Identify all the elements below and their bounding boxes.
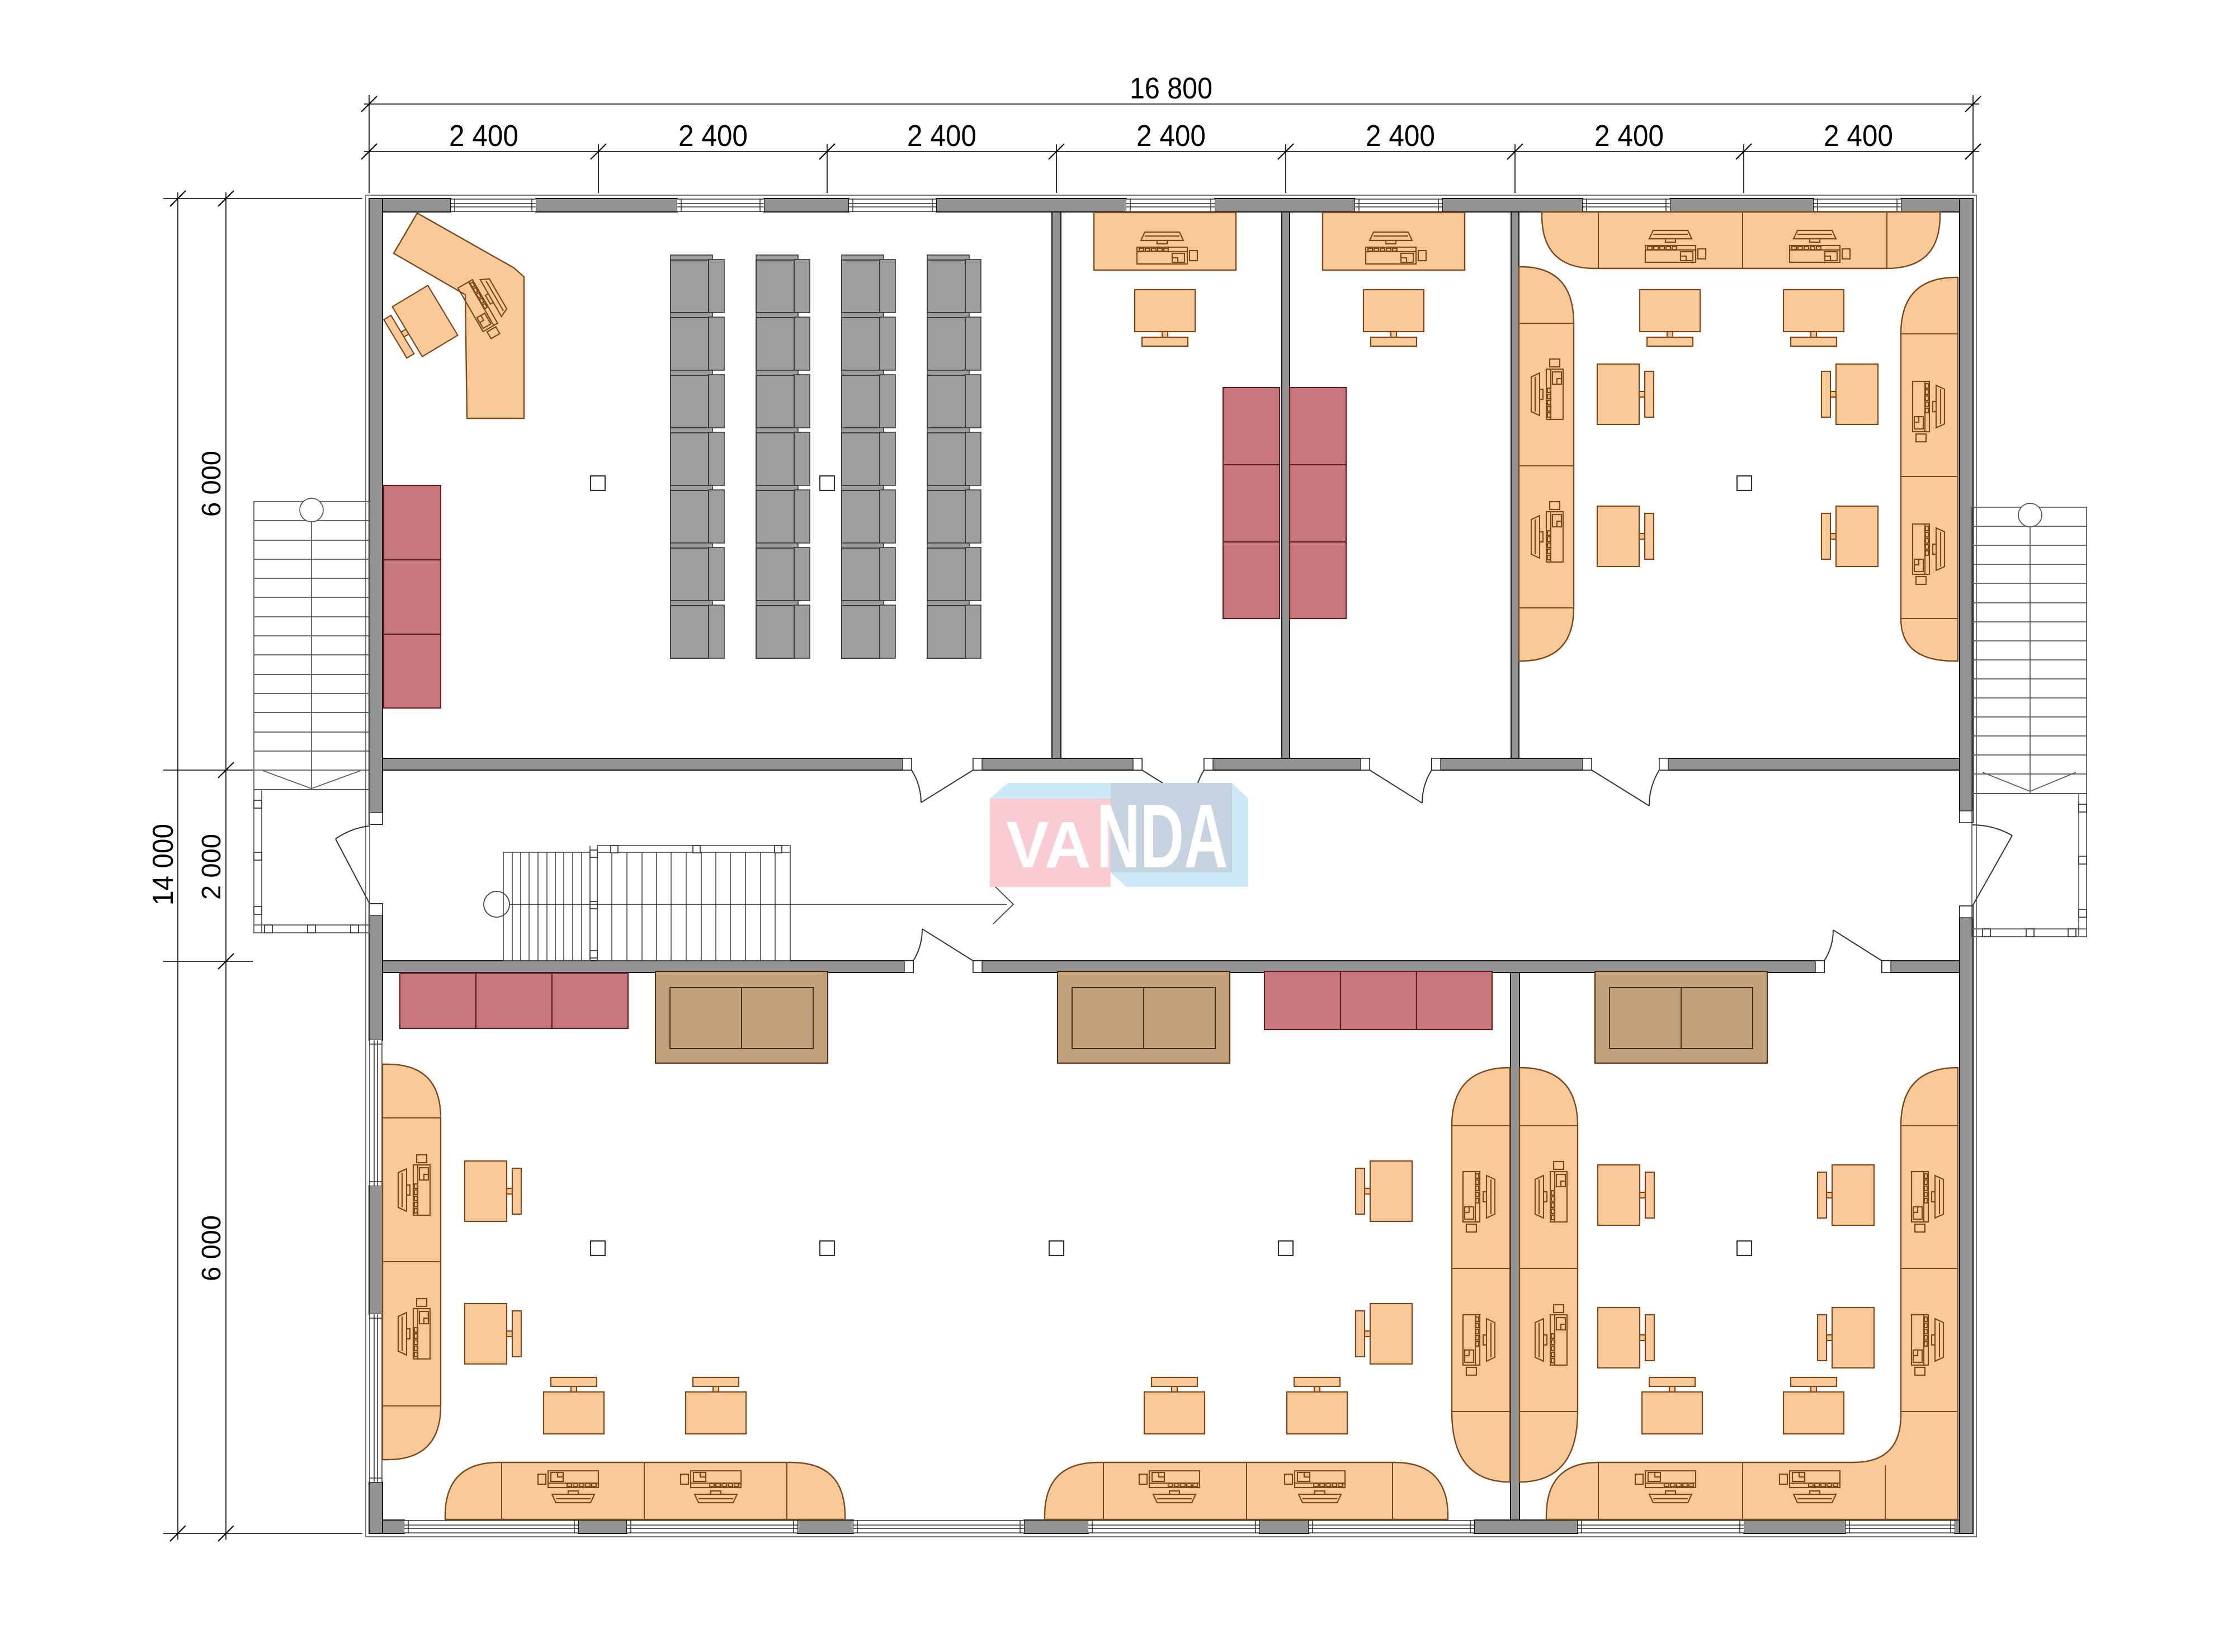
svg-text:2 400: 2 400 <box>907 119 976 153</box>
svg-text:16 800: 16 800 <box>1130 72 1212 105</box>
svg-text:14 000: 14 000 <box>147 824 180 905</box>
svg-text:NDA: NDA <box>1097 786 1228 887</box>
svg-text:2 400: 2 400 <box>1136 119 1206 153</box>
svg-text:2 400: 2 400 <box>678 119 748 153</box>
svg-text:2 000: 2 000 <box>197 834 226 900</box>
svg-text:2 400: 2 400 <box>1824 119 1893 153</box>
svg-text:6 000: 6 000 <box>197 1215 226 1281</box>
svg-text:2 400: 2 400 <box>1366 119 1435 153</box>
svg-text:2 400: 2 400 <box>1594 119 1664 153</box>
svg-text:VA: VA <box>1006 808 1091 882</box>
svg-text:6 000: 6 000 <box>197 451 226 517</box>
svg-text:2 400: 2 400 <box>449 119 518 153</box>
